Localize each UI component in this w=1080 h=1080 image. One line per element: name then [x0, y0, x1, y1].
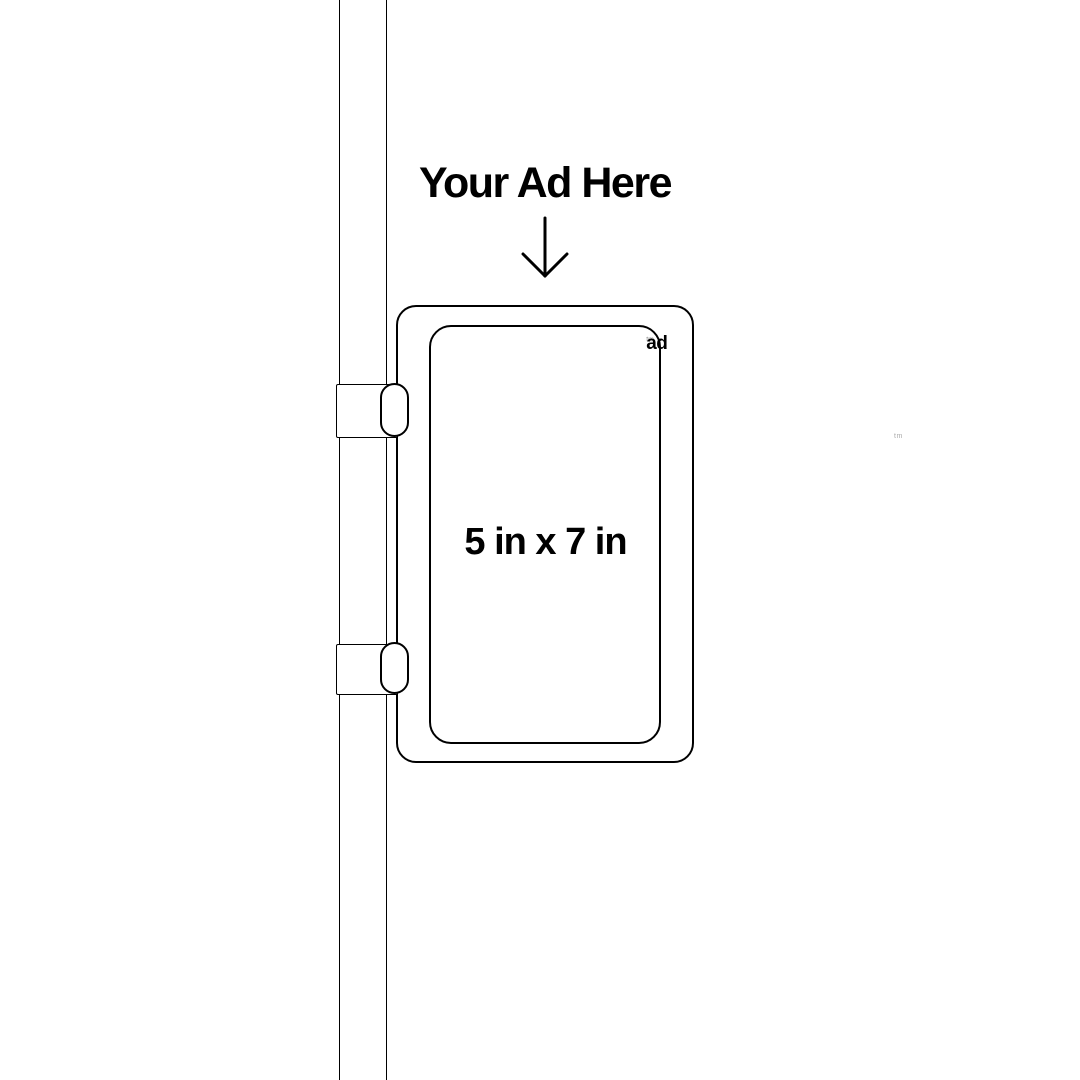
mounting-bolt-bottom	[380, 642, 409, 694]
ad-size-label: 5 in x 7 in	[397, 521, 694, 564]
ad-brand-logo: adtm	[596, 334, 654, 353]
stray-trademark-watermark: tm	[894, 433, 903, 440]
ad-brand-text: ad	[646, 334, 667, 353]
ad-mockup-canvas: Your Ad Here 5 in x 7 in adtm tm	[0, 0, 1080, 1080]
down-arrow-icon	[505, 210, 595, 290]
mounting-bolt-top	[380, 383, 409, 437]
headline-text: Your Ad Here	[345, 160, 745, 207]
